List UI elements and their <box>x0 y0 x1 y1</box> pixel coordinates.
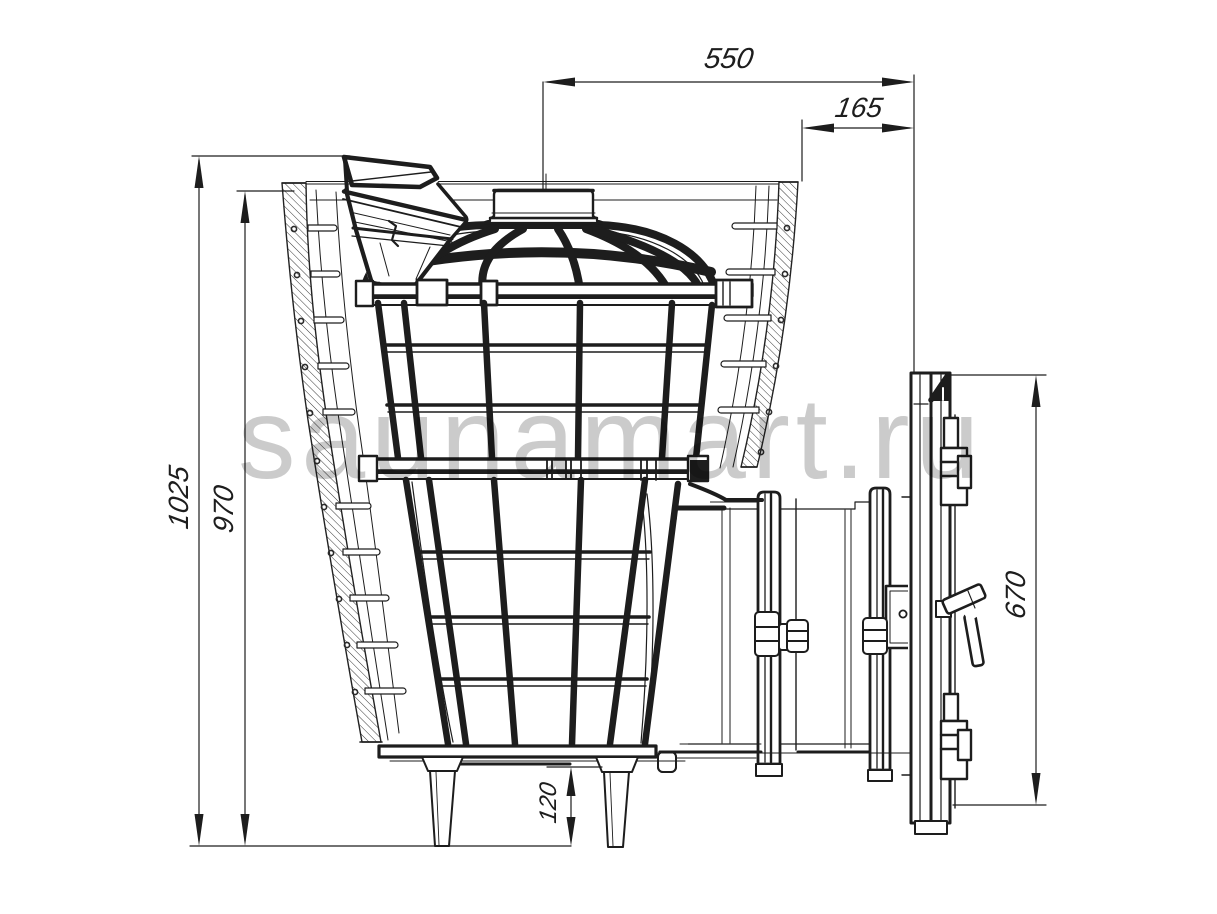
svg-text:1025: 1025 <box>162 463 194 531</box>
svg-text:970: 970 <box>207 482 239 535</box>
svg-text:120: 120 <box>535 780 562 825</box>
svg-text:670: 670 <box>999 568 1031 621</box>
svg-text:550: 550 <box>702 43 756 75</box>
svg-text:165: 165 <box>833 91 886 123</box>
